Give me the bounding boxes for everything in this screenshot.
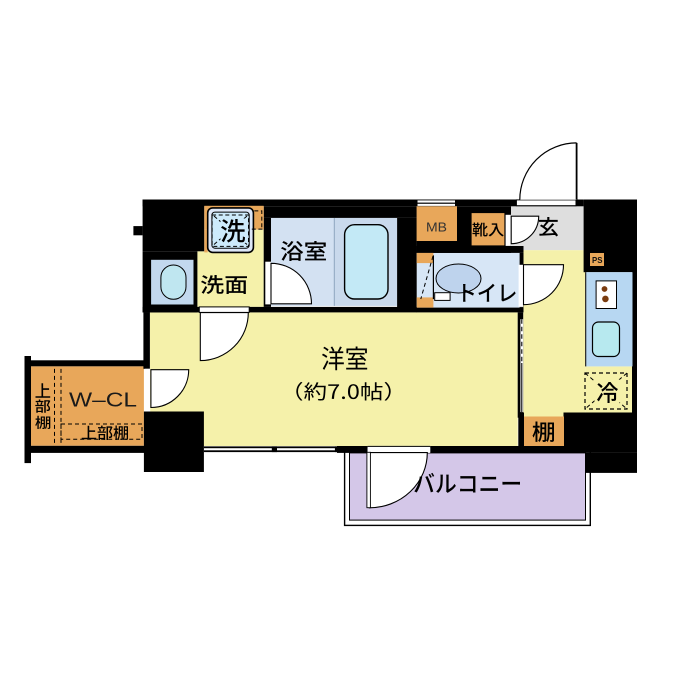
svg-text:MB: MB xyxy=(426,220,447,235)
svg-text:PS: PS xyxy=(592,255,603,265)
svg-text:W–CL: W–CL xyxy=(69,390,137,412)
